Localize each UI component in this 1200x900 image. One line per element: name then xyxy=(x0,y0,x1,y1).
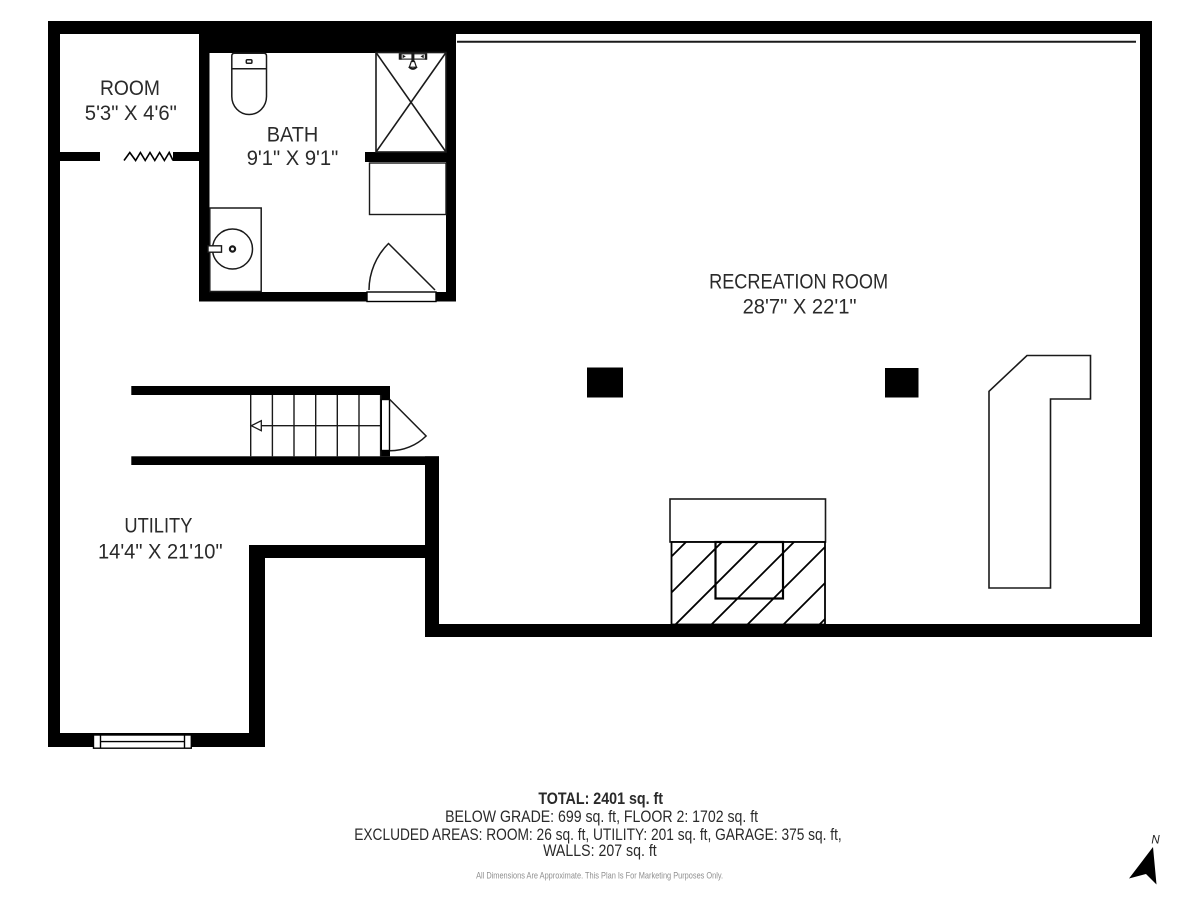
svg-text:BELOW GRADE: 699 sq. ft, FLOOR: BELOW GRADE: 699 sq. ft, FLOOR 2: 1702 s… xyxy=(445,808,758,826)
svg-text:BATH: BATH xyxy=(267,122,319,147)
svg-text:All Dimensions Are Approximate: All Dimensions Are Approximate. This Pla… xyxy=(476,870,723,881)
svg-text:28'7" X 22'1": 28'7" X 22'1" xyxy=(743,293,857,318)
svg-text:WALLS: 207 sq. ft: WALLS: 207 sq. ft xyxy=(543,842,657,860)
svg-text:5'3" X 4'6": 5'3" X 4'6" xyxy=(85,100,177,125)
svg-text:14'4" X 21'10": 14'4" X 21'10" xyxy=(98,538,223,563)
svg-text:TOTAL: 2401 sq. ft: TOTAL: 2401 sq. ft xyxy=(538,790,663,808)
svg-text:9'1" X 9'1": 9'1" X 9'1" xyxy=(247,145,339,170)
svg-text:N: N xyxy=(1151,835,1160,847)
svg-text:ROOM: ROOM xyxy=(100,75,160,100)
svg-text:UTILITY: UTILITY xyxy=(124,513,192,538)
svg-text:RECREATION ROOM: RECREATION ROOM xyxy=(709,268,888,293)
